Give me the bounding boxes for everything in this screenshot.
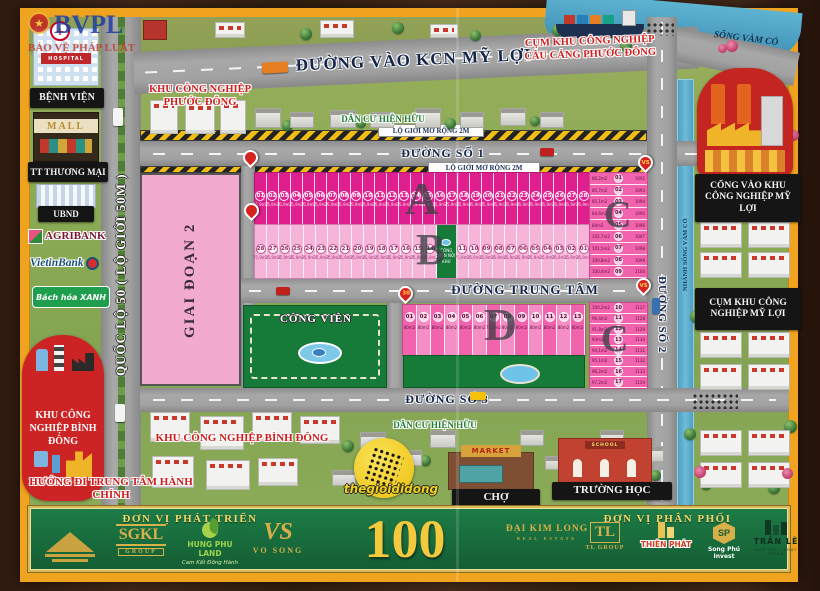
sgkl-text: SGKL <box>116 524 166 546</box>
decor: 80m2 <box>404 325 416 330</box>
decor: 01 <box>614 174 623 183</box>
decor: 03 <box>279 191 289 201</box>
factory-icon <box>34 451 48 467</box>
mall-sign: MALL <box>34 119 98 133</box>
plot-cell: 0475,9m2 <box>542 225 554 278</box>
pagoda-roof <box>46 532 94 552</box>
decor: 80m2 <box>558 325 570 330</box>
decor: 04 <box>542 244 552 254</box>
factory-building <box>258 458 298 486</box>
plot-cell: 2375,9m2 <box>316 225 328 278</box>
agribank-text: AGRIBANK <box>45 230 106 242</box>
plot-cell: 0875,9m2 <box>493 225 505 278</box>
decor: 100,2m2 <box>592 305 613 310</box>
plot-cell: 0375,9m2 <box>279 173 291 225</box>
plot-cell: 0775,9m2 <box>327 173 339 225</box>
factory-building <box>748 222 790 248</box>
cho-label: CHỢ <box>452 489 540 507</box>
bus-icon <box>262 61 289 73</box>
plot-cell: 0175,9m2 <box>255 173 267 225</box>
pagoda-steps <box>52 559 88 562</box>
decor: 06 <box>475 312 485 322</box>
decor: 25 <box>543 191 553 201</box>
factory-icon <box>761 96 783 146</box>
tranle-sub: HỢP TÁC - PHÁT TRIỂN <box>752 548 800 556</box>
plot-cell: 1775,9m2 <box>388 225 400 278</box>
tree-icon <box>392 22 404 34</box>
plot-cell: 1280m2 <box>557 305 571 355</box>
decor: 27 <box>567 191 577 201</box>
plot-cell: 2775,9m2 <box>566 173 578 225</box>
ship-bridge <box>622 10 636 26</box>
fountain-tier <box>312 348 326 357</box>
decor: 01 <box>405 312 415 322</box>
decor: 1100 <box>624 269 645 274</box>
plot-cell: 0275,9m2 <box>566 225 578 278</box>
house-icon <box>460 112 484 128</box>
market-sign: MARKET <box>461 445 521 457</box>
plot-cell: 2475,9m2 <box>530 173 542 225</box>
block-c-upper-letter: C <box>604 196 631 234</box>
decor: 06 <box>315 191 325 201</box>
decor: 1099 <box>624 258 645 263</box>
decor: 02 <box>566 244 576 254</box>
dan-cu-bottom-label: DÂN CƯ HIỆN HỮU <box>385 420 485 430</box>
plot-cell: 1075,9m2 <box>469 225 481 278</box>
plot-cell: 0775,9m2 <box>505 225 517 278</box>
kcn-binh-dong-label: KHU CÔNG NGHIỆP BÌNH ĐÔNG <box>152 432 332 445</box>
plot-row: 96,2m2161133 <box>590 367 647 378</box>
house-icon <box>430 430 456 448</box>
decor: 80m2 <box>432 325 444 330</box>
house-icon <box>255 108 281 128</box>
tree-icon <box>300 28 312 40</box>
fountain-icon <box>298 342 342 364</box>
plot-cell: 0475,9m2 <box>291 173 303 225</box>
plot-cell: 2075,9m2 <box>352 225 364 278</box>
decor: 02 <box>419 312 429 322</box>
decor: 22 <box>507 191 517 201</box>
decor: 07 <box>506 244 516 254</box>
flower-bush-icon <box>694 466 706 478</box>
thienphat-text: THIÊN PHÁT <box>641 540 691 549</box>
decor <box>658 522 665 538</box>
plot-cell: 1875,9m2 <box>376 225 388 278</box>
decor: 21 <box>495 191 505 201</box>
plot-row: 86,2m2011092 <box>590 173 647 185</box>
school-door <box>627 459 636 477</box>
plot-cell: 0380m2 <box>431 305 445 355</box>
market-window <box>459 465 503 483</box>
plot-cell: 1975,9m2 <box>470 173 482 225</box>
decor: 80m2 <box>544 325 556 330</box>
plot-cell: 0675,9m2 <box>315 173 327 225</box>
decor: 20 <box>353 244 363 254</box>
ubnd-building <box>36 184 96 208</box>
daikimlong-text: ĐẠI KIM LONG <box>506 524 588 534</box>
house-icon <box>500 108 526 126</box>
decor: 16 <box>614 367 623 376</box>
decor: 08 <box>494 244 504 254</box>
car-icon <box>540 148 554 156</box>
dan-cu-top-label: DÂN CƯ HIỆN HỮU <box>336 114 430 124</box>
tree-icon <box>684 428 696 440</box>
decor: 96,2m2 <box>592 369 613 374</box>
decor: 19 <box>471 191 481 201</box>
decor: 80m2 <box>460 325 472 330</box>
plot-cell: 1675,9m2 <box>401 225 413 278</box>
decor: 28 <box>579 191 589 201</box>
sgkl-logo: SGKL GROUP <box>112 524 170 556</box>
block-b-letter: B <box>416 228 445 272</box>
emblem-icon: ★ <box>28 12 50 34</box>
decor: 01 <box>255 191 265 201</box>
songphu-logo: SP Song Phú Invest <box>698 522 750 560</box>
factory-building <box>700 462 742 488</box>
leaf-icon <box>202 522 218 538</box>
decor: 23 <box>519 191 529 201</box>
plot-cell: 1975,9m2 <box>364 225 376 278</box>
decor: 23 <box>316 244 326 254</box>
plot-cell: 2475,9m2 <box>304 225 316 278</box>
vietinbank-logo: VietinBank <box>30 252 110 274</box>
bachhoaxanh-text: Bách hóa XANH <box>36 293 106 302</box>
factory-building <box>700 430 742 456</box>
plot-row: 100,4m2091100 <box>590 266 647 278</box>
decor: 17 <box>389 244 399 254</box>
kcn-phuoc-dong-label: KHU CÔNG NGHIỆP PHƯỚC ĐÔNG <box>140 84 260 109</box>
plot-cell: 2275,9m2 <box>328 225 340 278</box>
decor: 09 <box>614 267 623 276</box>
decor <box>773 525 779 535</box>
decor <box>667 527 674 538</box>
chimney-icon <box>737 84 751 124</box>
plot-cell: 2275,9m2 <box>506 173 518 225</box>
park: CÔNG VIÊN <box>243 305 387 388</box>
footer-bar: ĐƠN VỊ PHÁT TRIỂN SGKL GROUP HUNG PHU LA… <box>28 506 790 572</box>
plot-cell: 1075,9m2 <box>363 173 375 225</box>
plot-cell: 0975,9m2 <box>351 173 363 225</box>
factory-icon <box>705 150 785 172</box>
ubnd-label: UBND <box>38 206 94 222</box>
container-icon <box>603 15 614 24</box>
sgkl-sub: GROUP <box>118 548 164 556</box>
factory-building <box>700 252 742 278</box>
plot-row: 100,8m2081099 <box>590 255 647 267</box>
decor: 10 <box>614 303 623 312</box>
decor: 12 <box>559 312 569 322</box>
decor: 09 <box>482 244 492 254</box>
decor: 11 <box>375 191 385 201</box>
thienphat-logo: THIÊN PHÁT <box>638 522 694 549</box>
decor: 10 <box>469 244 479 254</box>
house-icon <box>290 112 314 128</box>
hungphuland-sub: Cam Kết Đồng Hành <box>182 560 238 566</box>
decor: 11 <box>545 312 555 322</box>
plot-cell: 1080m2 <box>529 305 543 355</box>
container-icon <box>577 15 588 24</box>
kcn-binh-dong-badge-text: KHU CÔNG NGHIỆP BÌNH ĐÔNG <box>25 409 101 448</box>
flower-bush-icon <box>718 44 727 53</box>
decor: 1127 <box>624 305 645 310</box>
factory-building <box>748 332 790 358</box>
school-door <box>600 459 609 477</box>
decor: 27 <box>268 244 278 254</box>
decor: 05 <box>530 244 540 254</box>
decor: 30 <box>402 291 410 297</box>
plot-cell: 2675,9m2 <box>554 173 566 225</box>
plot-cell: 2575,9m2 <box>291 225 303 278</box>
decor: 85,7m2 <box>592 188 613 193</box>
container-icon <box>564 15 575 24</box>
plot-cell: 1175,9m2 <box>375 173 387 225</box>
building-icon <box>658 522 674 538</box>
hospital-label: BỆNH VIỆN <box>30 88 104 108</box>
plot-cell: 0175,9m2 <box>578 225 590 278</box>
watermark: ★ BVPL BẢO VỆ PHÁP LUẬT <box>28 10 178 62</box>
phase-2-block: GIAI ĐOẠN 2 <box>140 173 241 386</box>
tlgroup-text: TL GROUP <box>586 545 625 551</box>
sp-monogram: SP <box>713 522 735 544</box>
decor: 18 <box>377 244 387 254</box>
plot-row: 97,2m2171134 <box>590 377 647 388</box>
school-building: SCHOOL <box>558 438 652 484</box>
plot-cell: 1875,9m2 <box>458 173 470 225</box>
plot-cell: 2075,9m2 <box>482 173 494 225</box>
decor: 97,2m2 <box>592 380 613 385</box>
decor: 10 <box>531 312 541 322</box>
school-sign: SCHOOL <box>585 441 625 449</box>
decor: 1134 <box>624 380 645 385</box>
house-icon <box>520 430 544 446</box>
tlgroup-logo: TL TL GROUP <box>578 522 632 551</box>
songphu-text: Song Phú Invest <box>698 546 750 560</box>
plot-row: 100,2m2101127 <box>590 303 647 314</box>
big-number: 100 <box>362 508 448 570</box>
block-c-lower-letter: C <box>601 320 628 358</box>
car-icon <box>652 298 660 314</box>
factory-building <box>748 364 790 390</box>
decor: 12 <box>387 191 397 201</box>
pagoda-base <box>45 554 95 557</box>
decor: VS <box>641 160 649 166</box>
fold-crease <box>456 8 459 582</box>
plot-cell: 2775,9m2 <box>267 225 279 278</box>
decor: 1098 <box>624 246 645 251</box>
plot-cell: 1180m2 <box>543 305 557 355</box>
decor: 07 <box>614 244 623 253</box>
decor: 28 <box>256 244 266 254</box>
decor: 03 <box>554 244 564 254</box>
vosong-logo: VS VO SONG <box>248 520 308 555</box>
decor <box>781 522 787 535</box>
truong-hoc-label: TRƯỜNG HỌC <box>552 482 672 500</box>
decor: 22 <box>328 244 338 254</box>
decor: 17 <box>614 378 623 387</box>
decor: 10 <box>363 191 373 201</box>
decor: 1092 <box>624 176 645 181</box>
factory-building <box>748 430 790 456</box>
plot-cell: 0575,9m2 <box>530 225 542 278</box>
car-icon <box>115 404 125 422</box>
tranle-text: TRẦN LÊ <box>754 537 799 546</box>
factory-icon <box>36 349 48 371</box>
factory-building <box>206 460 250 490</box>
decor: 25 <box>292 244 302 254</box>
map-poster: NHÁNH SÔNG VÀM CỎ QUỐC LỘ 50 ( LỘ GIỚI 5… <box>0 0 820 591</box>
mall-building: MALL <box>33 112 99 162</box>
factory-icon <box>52 455 60 473</box>
decor: 20 <box>483 191 493 201</box>
park-label: CÔNG VIÊN <box>264 313 368 325</box>
decor: VS <box>639 283 647 289</box>
decor: 21 <box>340 244 350 254</box>
decor: 86,2m2 <box>592 176 613 181</box>
tree-icon <box>445 118 456 129</box>
decor: 101,5m2 <box>592 246 613 251</box>
plot-cell: 0975,9m2 <box>481 225 493 278</box>
vosong-monogram: VS <box>263 520 292 544</box>
pond-icon <box>500 364 540 384</box>
factory-building <box>748 252 790 278</box>
plot-cell: 2875,9m2 <box>578 173 590 225</box>
cau-cang-label: CỤM KHU CÔNG NGHIỆP CẦU CẢNG PHƯỚC ĐÔNG <box>514 33 667 63</box>
factory-icon <box>66 447 92 477</box>
plot-cell: 0375,9m2 <box>554 225 566 278</box>
school-door <box>573 459 582 477</box>
decor: 80m2 <box>516 325 528 330</box>
tree-icon <box>530 116 540 126</box>
plot-cell: 2875,9m2 <box>255 225 267 278</box>
decor: 100,4m2 <box>592 269 613 274</box>
watermark-name: BẢO VỆ PHÁP LUẬT <box>28 42 135 54</box>
bachhoaxanh-logo: Bách hóa XANH <box>32 286 110 308</box>
decor: 03 <box>433 312 443 322</box>
cong-vao-my-loi-label: CỔNG VÀO KHU CÔNG NGHIỆP MỸ LỢI <box>695 174 801 222</box>
mall-label: TT THƯƠNG MẠI <box>28 162 108 182</box>
decor: 18 <box>459 191 469 201</box>
flower-bush-icon <box>782 468 793 479</box>
plot-cell: 2575,9m2 <box>542 173 554 225</box>
decor: 26 <box>555 191 565 201</box>
market-building: MARKET <box>448 452 534 490</box>
daikimlong-sub: REAL ESTATE <box>517 536 577 541</box>
decor: 09 <box>517 312 527 322</box>
decor: 05 <box>303 191 313 201</box>
tl-monogram: TL <box>590 522 620 543</box>
plot-cell: 1380m2 <box>571 305 585 355</box>
chimney-icon <box>711 84 725 124</box>
direction-label: HƯỚNG ĐI TRUNG TÂM HÀNH CHÍNH <box>26 476 196 502</box>
decor: 05 <box>461 312 471 322</box>
plot-cell: 0280m2 <box>417 305 431 355</box>
factory-building <box>700 332 742 358</box>
plot-row: 101,5m2071098 <box>590 243 647 255</box>
block-a-letter: A <box>405 176 438 222</box>
hungphuland-logo: HUNG PHU LAND Cam Kết Đồng Hành <box>176 522 244 566</box>
plot-cell: 0875,9m2 <box>339 173 351 225</box>
taxi-icon <box>470 392 486 400</box>
block-d-green-strip <box>403 355 585 388</box>
decor: 100,8m2 <box>592 258 613 263</box>
decor: 06 <box>518 244 528 254</box>
factory-building <box>320 20 354 38</box>
agribank-logo: AGRIBANK <box>28 226 110 246</box>
plot-cell: 0275,9m2 <box>267 173 279 225</box>
pagoda-logo <box>38 526 102 568</box>
vietinbank-text: VietinBank <box>30 257 84 269</box>
decor: 04 <box>447 312 457 322</box>
decor: 1093 <box>624 188 645 193</box>
tree-icon <box>470 30 481 41</box>
tree-icon <box>342 440 354 452</box>
plot-cell: 0575,9m2 <box>303 173 315 225</box>
decor: 07 <box>327 191 337 201</box>
decor: 02 <box>267 191 277 201</box>
vosong-text: VO SONG <box>253 546 304 555</box>
vietinbank-icon <box>86 257 99 270</box>
decor: 80m2 <box>418 325 430 330</box>
decor: 01 <box>579 244 589 254</box>
factory-icon <box>54 345 64 371</box>
decor: 16 <box>401 244 411 254</box>
plot-cell: 1275,9m2 <box>387 173 399 225</box>
container-icon <box>590 15 601 24</box>
decor: 09 <box>351 191 361 201</box>
factory-building <box>215 22 245 38</box>
industrial-illustration <box>697 68 793 178</box>
plot-cell: 0675,9m2 <box>517 225 529 278</box>
plot-cell: 0180m2 <box>403 305 417 355</box>
plot-cell: 2675,9m2 <box>279 225 291 278</box>
plot-cell: 2375,9m2 <box>518 173 530 225</box>
decor: 08 <box>339 191 349 201</box>
cum-my-loi-label: CỤM KHU CÔNG NGHIỆP MỸ LỢI <box>695 288 801 330</box>
decor: 04 <box>291 191 301 201</box>
house-icon <box>540 112 564 128</box>
factory-building <box>700 364 742 390</box>
car-icon <box>276 287 290 295</box>
decor: 26 <box>280 244 290 254</box>
thegioididong-text: thegioididong <box>328 482 454 496</box>
car-icon <box>113 108 123 126</box>
watermark-acronym: BVPL <box>54 10 123 40</box>
plot-cell: 2175,9m2 <box>494 173 506 225</box>
factory-icon <box>72 353 94 371</box>
plot-cell: 0580m2 <box>459 305 473 355</box>
decor: 08 <box>614 256 623 265</box>
block-d-letter: D <box>484 302 517 348</box>
factory-building <box>430 24 458 38</box>
building-icon <box>765 520 787 535</box>
decor <box>765 520 771 535</box>
decor: 13 <box>573 312 583 322</box>
decor: 80m2 <box>530 325 542 330</box>
tranle-logo: TRẦN LÊ HỢP TÁC - PHÁT TRIỂN <box>752 520 800 556</box>
phase-2-label: GIAI ĐOẠN 2 <box>182 190 199 370</box>
hungphuland-text: HUNG PHU LAND <box>176 540 244 558</box>
decor: 19 <box>365 244 375 254</box>
decor: 24 <box>531 191 541 201</box>
decor: 75,9m2 <box>576 255 591 260</box>
mall-window-strip <box>40 139 92 153</box>
decor: 1133 <box>624 369 645 374</box>
decor: 24 <box>304 244 314 254</box>
agribank-icon <box>28 229 43 244</box>
decor: 80m2 <box>572 325 584 330</box>
factory-building <box>700 222 742 248</box>
plot-cell: 2175,9m2 <box>340 225 352 278</box>
